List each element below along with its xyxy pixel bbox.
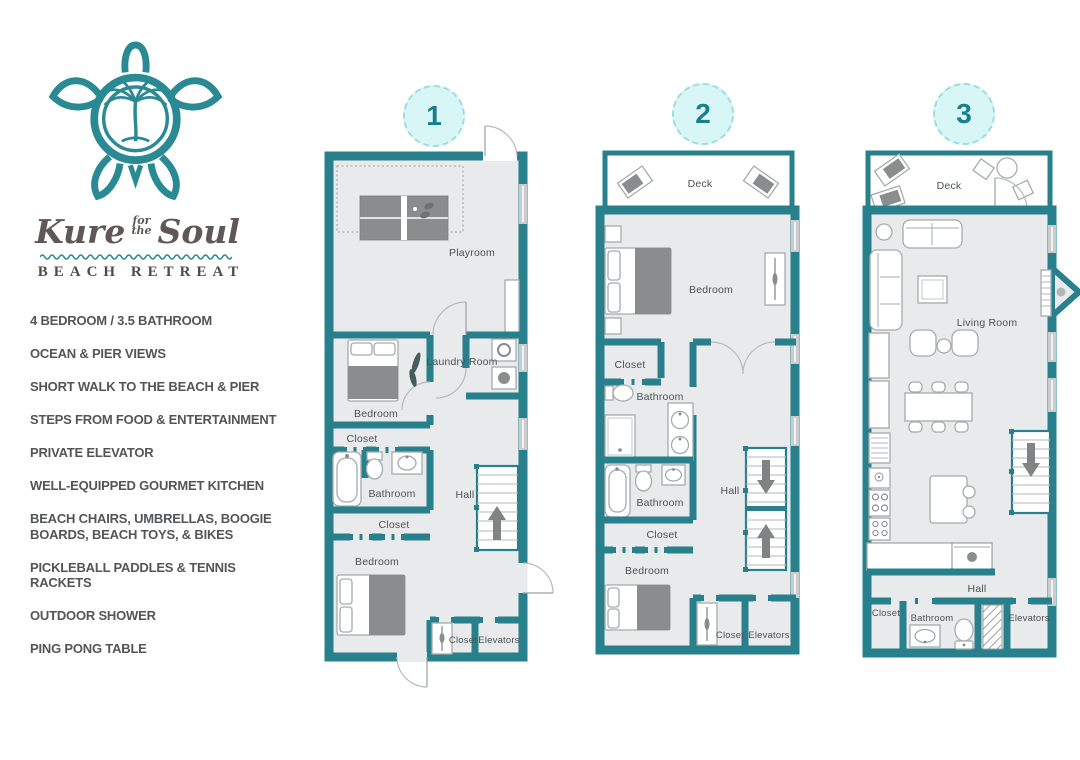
amenity-item: BEACH CHAIRS, UMBRELLAS, BOOGIE BOARDS, …: [30, 511, 300, 542]
wavy-divider: [40, 252, 232, 262]
room-label: Closet: [647, 529, 678, 541]
room-label: Closet: [716, 630, 744, 641]
room-label: Elevators: [478, 635, 519, 646]
room-label: Hall: [721, 485, 740, 497]
floor-plan-3: Deck Living Room Hall Closet Bathroom El…: [855, 120, 1080, 700]
amenity-item: PING PONG TABLE: [30, 641, 300, 657]
room-label: Deck: [688, 178, 713, 190]
room-label: Laundry Room: [426, 356, 497, 368]
amenity-item: PRIVATE ELEVATOR: [30, 445, 300, 461]
room-label: Deck: [937, 180, 962, 192]
amenity-item: STEPS FROM FOOD & ENTERTAINMENT: [30, 412, 300, 428]
amenity-item: PICKLEBALL PADDLES & TENNIS RACKETS: [30, 560, 300, 591]
room-label: Bathroom: [368, 488, 415, 500]
room-label: Playroom: [449, 247, 495, 259]
amenity-item: WELL-EQUIPPED GOURMET KITCHEN: [30, 478, 300, 494]
sea-turtle-logo-icon: [48, 38, 223, 210]
room-label: Living Room: [957, 317, 1018, 329]
room-label: Closet: [347, 433, 378, 445]
brand-word-soul: Soul: [158, 212, 240, 251]
room-label: Elevators: [1008, 613, 1049, 624]
room-label: Bedroom: [625, 565, 669, 577]
floor-1-badge: 1: [403, 85, 465, 147]
amenity-item: SHORT WALK TO THE BEACH & PIER: [30, 379, 300, 395]
room-label: Elevators: [748, 630, 789, 641]
room-label: Bedroom: [355, 556, 399, 568]
room-label: Hall: [456, 489, 475, 501]
flyer-canvas: Kure for the Soul BEACH RETREAT 4 BEDROO…: [0, 0, 1080, 760]
room-label: Closet: [872, 608, 900, 619]
amenity-item: OUTDOOR SHOWER: [30, 608, 300, 624]
amenity-item: OCEAN & PIER VIEWS: [30, 346, 300, 362]
room-label: Hall: [968, 583, 987, 595]
amenities-list: 4 BEDROOM / 3.5 BATHROOM OCEAN & PIER VI…: [30, 313, 300, 674]
brand-script-title: Kure for the Soul: [30, 212, 245, 251]
amenity-item: 4 BEDROOM / 3.5 BATHROOM: [30, 313, 300, 329]
brand-word-forthe: for the: [131, 216, 151, 236]
room-label: Bedroom: [689, 284, 733, 296]
floor-plan-2: Deck Bedroom Closet Bathroom Bathroom Ha…: [593, 120, 805, 700]
room-label: Closet: [379, 519, 410, 531]
brand-subtitle: BEACH RETREAT: [36, 264, 246, 281]
floor-2-badge: 2: [672, 83, 734, 145]
room-label: Bathroom: [636, 497, 683, 509]
floor-plan-1: Playroom Laundry Room Bedroom Closet Bat…: [320, 120, 560, 700]
room-label: Bedroom: [354, 408, 398, 420]
brand-word-kure: Kure: [35, 212, 125, 251]
room-label: Closet: [449, 635, 477, 646]
room-label: Bathroom: [911, 613, 954, 624]
room-label: Closet: [615, 359, 646, 371]
room-label: Bathroom: [636, 391, 683, 403]
floor-3-badge: 3: [933, 83, 995, 145]
